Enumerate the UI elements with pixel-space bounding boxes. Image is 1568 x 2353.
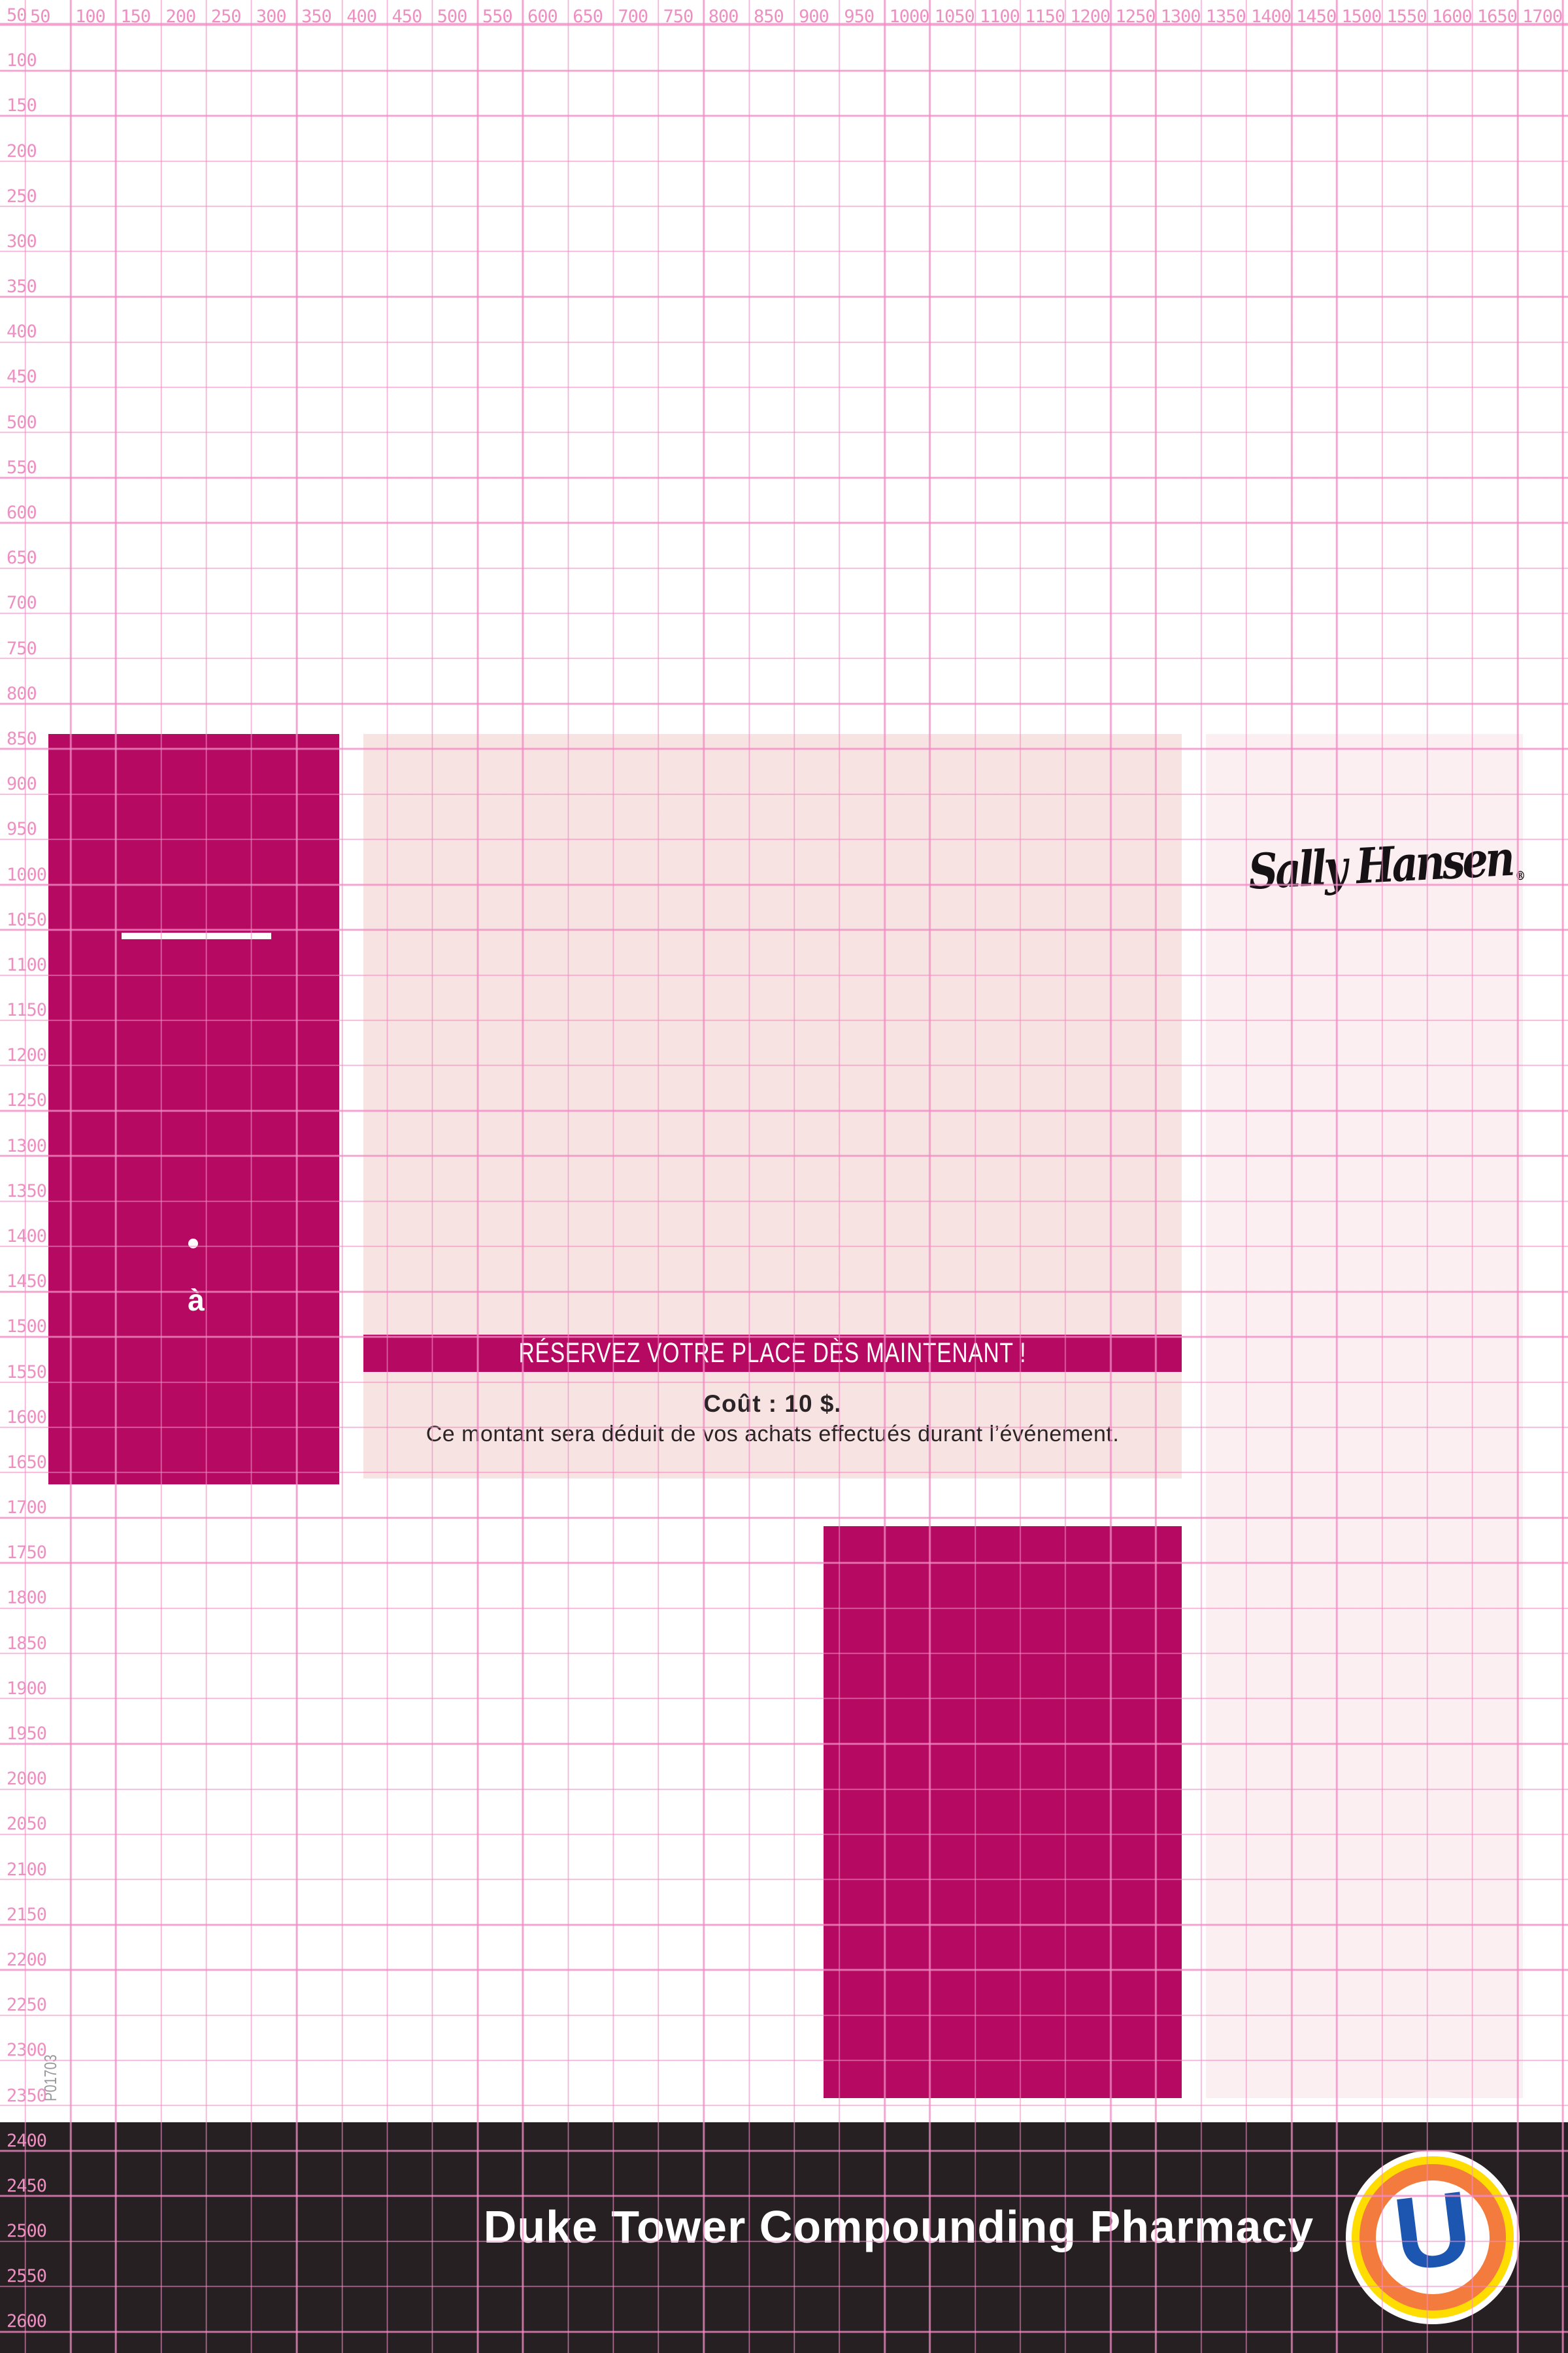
panel-lower-magenta — [824, 1526, 1182, 2098]
ruler-left-tick-label: 350 — [7, 278, 37, 295]
ruler-left-tick-label: 550 — [7, 459, 37, 476]
ruler-left-tick-label: 200 — [7, 142, 37, 160]
ruler-left-tick-label: 1750 — [7, 1544, 46, 1561]
ruler-left-tick-label: 2200 — [7, 1951, 46, 1969]
uniprix-logo: U — [1346, 2150, 1520, 2324]
reserve-banner-text: RÉSERVEZ VOTRE PLACE DÈS MAINTENANT ! — [519, 1339, 1027, 1367]
ruler-left-tick-label: 650 — [7, 549, 37, 567]
ruler-left-tick-label: 400 — [7, 323, 37, 341]
proof-side-code: P01703 — [41, 2054, 61, 2101]
ruler-left-tick-label: 1800 — [7, 1589, 46, 1607]
ruler-left-tick-label: 1950 — [7, 1725, 46, 1743]
ruler-left-tick-label: 450 — [7, 368, 37, 386]
deduction-note: Ce montant sera déduit de vos achats eff… — [363, 1422, 1182, 1446]
ruler-left-tick-label: 900 — [7, 775, 37, 793]
sally-hansen-logo: Sally Hansen® — [1247, 834, 1447, 901]
pharmacy-name: Duke Tower Compounding Pharmacy — [484, 2204, 1314, 2250]
ruler-top-tick-label: 1150 — [1025, 8, 1065, 25]
ruler-top-tick-label: 900 — [799, 8, 829, 25]
ruler-left-tick-label: 800 — [7, 685, 37, 703]
accent-letter: à — [176, 1285, 216, 1315]
ruler-top-tick-label: 1500 — [1341, 8, 1381, 25]
ruler-left-tick-label: 1900 — [7, 1680, 46, 1697]
ruler-left-tick-label: 2150 — [7, 1906, 46, 1924]
ruler-left-tick-label: 750 — [7, 640, 37, 658]
ruler-top-tick-label: 250 — [211, 8, 241, 25]
ruler-top-tick-label: 650 — [573, 8, 603, 25]
panel-left-magenta — [48, 734, 339, 1484]
ruler-left-tick-label: 1250 — [7, 1092, 46, 1109]
ruler-left-tick-label: 1700 — [7, 1499, 46, 1516]
ruler-left-tick-label: 850 — [7, 730, 37, 748]
ruler-left-tick-label: 1850 — [7, 1635, 46, 1652]
ruler-left-tick-label: 1600 — [7, 1409, 46, 1426]
ruler-top-tick-label: 1000 — [890, 8, 929, 25]
ruler-left-tick-label: 1400 — [7, 1227, 46, 1245]
ruler-left-tick-label: 1550 — [7, 1363, 46, 1381]
ruler-top-tick-label: 1100 — [980, 8, 1020, 25]
proof-page: à Sally Hansen® RÉSERVEZ VOTRE PLACE DÈS… — [0, 0, 1568, 2353]
panel-right-pink — [1206, 734, 1523, 2098]
ruler-left-tick-label: 600 — [7, 504, 37, 522]
ruler-top-tick-label: 500 — [437, 8, 467, 25]
ruler-left-tick-label: 1050 — [7, 911, 46, 929]
bullet-dot-icon — [188, 1239, 198, 1248]
ruler-top-tick-label: 400 — [346, 8, 376, 25]
ruler-top-tick-label: 600 — [527, 8, 558, 25]
ruler-left-tick-label: 1450 — [7, 1273, 46, 1290]
ruler-top-tick-label: 200 — [166, 8, 196, 25]
ruler-top-tick-label: 950 — [844, 8, 874, 25]
ruler-top-tick-label: 1300 — [1161, 8, 1201, 25]
ruler-top-tick-label: 1650 — [1477, 8, 1517, 25]
ruler-top-tick-label: 700 — [618, 8, 648, 25]
ruler-left-tick-label: 300 — [7, 233, 37, 250]
registered-trademark-icon: ® — [1515, 869, 1526, 884]
ruler-top-tick-label: 1350 — [1206, 8, 1246, 25]
divider-line — [122, 933, 271, 939]
ruler-top-tick-label: 850 — [754, 8, 784, 25]
ruler-top-tick-label: 100 — [75, 8, 105, 25]
ruler-left-tick-label: 1350 — [7, 1182, 46, 1200]
ruler-top-tick-label: 1250 — [1115, 8, 1155, 25]
ruler-left-tick-label: 1500 — [7, 1318, 46, 1335]
ruler-top-tick-label: 350 — [301, 8, 331, 25]
cost-line: Coût : 10 $. — [363, 1391, 1182, 1418]
ruler-top-tick-label: 1200 — [1070, 8, 1110, 25]
ruler-top-tick-label: 1050 — [935, 8, 975, 25]
ruler-left-tick-label: 1100 — [7, 956, 46, 974]
ruler-left-tick-label: 1650 — [7, 1454, 46, 1471]
ruler-left-tick-label: 1000 — [7, 866, 46, 884]
ruler-left-tick-label: 1150 — [7, 1001, 46, 1019]
ruler-left-tick-label: 250 — [7, 188, 37, 205]
ruler-top-tick-label: 1400 — [1251, 8, 1291, 25]
ruler-left-tick-label: 2250 — [7, 1996, 46, 2014]
ruler-top-tick-label: 550 — [482, 8, 512, 25]
ruler-top-tick-label: 800 — [709, 8, 739, 25]
ruler-left-tick-label: 2000 — [7, 1770, 46, 1788]
ruler-left-tick-label: 1200 — [7, 1046, 46, 1064]
ruler-left-tick-label: 1300 — [7, 1137, 46, 1155]
ruler-left-tick-label: 2100 — [7, 1861, 46, 1878]
ruler-left-tick-label: 2050 — [7, 1815, 46, 1833]
ruler-left-tick-label: 150 — [7, 97, 37, 114]
ruler-left-tick-label: 100 — [7, 52, 37, 69]
ruler-top-tick-label: 1700 — [1522, 8, 1562, 25]
ruler-left-tick-label: 500 — [7, 414, 37, 431]
ruler-top-tick-label: 150 — [120, 8, 150, 25]
ruler-top-tick-label: 450 — [392, 8, 422, 25]
logo-u-letter: U — [1389, 2175, 1477, 2287]
ruler-left-tick-label: 950 — [7, 820, 37, 838]
ruler-top-tick-label: 750 — [663, 8, 693, 25]
ruler-top-tick-label: 300 — [256, 8, 286, 25]
ruler-left-tick-label: 700 — [7, 594, 37, 612]
ruler-left-tick-label: 50 — [7, 7, 27, 24]
ruler-top-tick-label: 1550 — [1387, 8, 1427, 25]
ruler-top-tick-label: 1450 — [1296, 8, 1336, 25]
reserve-banner: RÉSERVEZ VOTRE PLACE DÈS MAINTENANT ! — [363, 1335, 1182, 1372]
ruler-top-tick-label: 50 — [30, 8, 50, 25]
ruler-top-tick-label: 1600 — [1432, 8, 1472, 25]
